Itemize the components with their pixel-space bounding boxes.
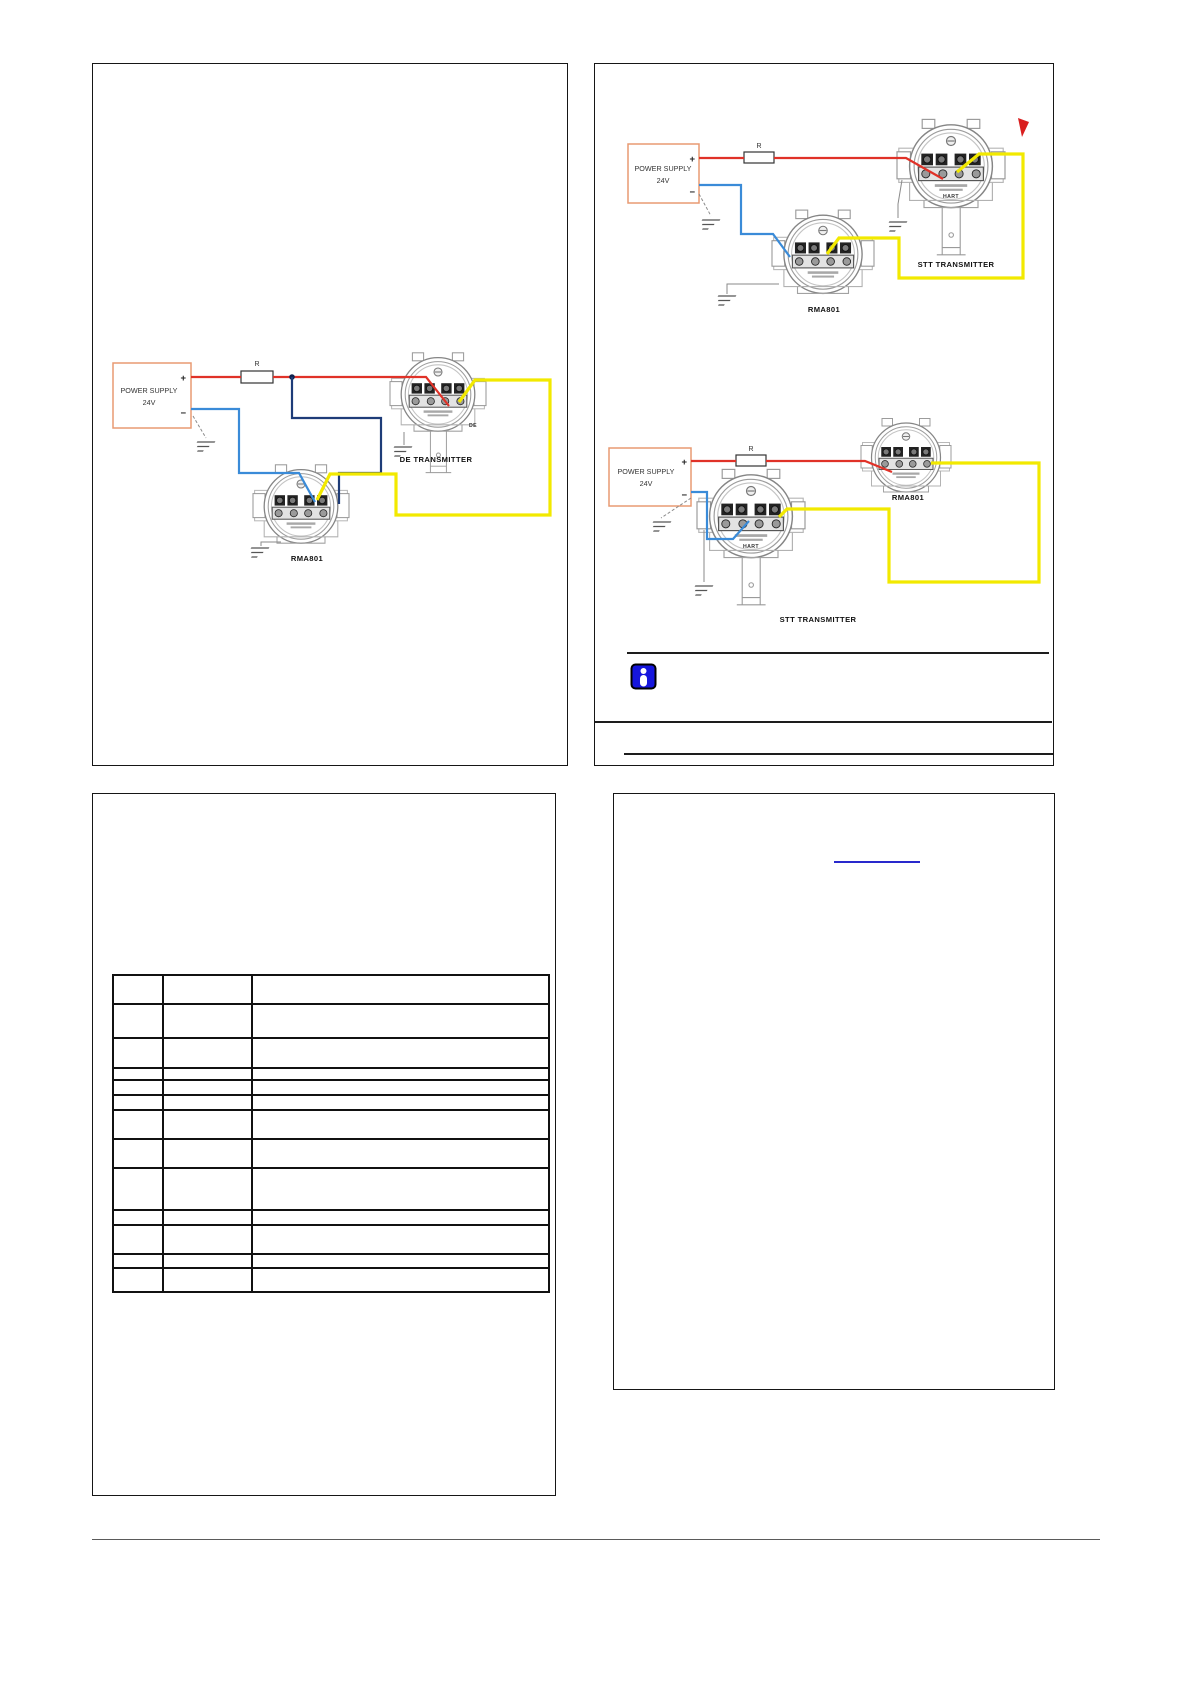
table-cell	[253, 1005, 548, 1037]
table-cell	[164, 1005, 253, 1037]
voltage-label: 24V	[143, 398, 156, 407]
resistor-symbol	[241, 371, 273, 383]
manual-page: POWER SUPPLY 24V + − R	[0, 0, 1192, 1685]
table-cell	[253, 1169, 548, 1209]
table-cell	[164, 1211, 253, 1224]
table-cell	[114, 1211, 164, 1224]
plus-terminal-label: +	[681, 457, 687, 468]
table-cell	[253, 1039, 548, 1067]
transmitter-label: DE TRANSMITTER	[400, 455, 473, 464]
voltage-label: 24V	[640, 479, 653, 488]
note-top-rule	[627, 652, 1049, 654]
table-cell	[253, 1226, 548, 1253]
table-cell	[114, 1096, 164, 1109]
table-cell	[164, 1081, 253, 1094]
table-cell	[114, 1140, 164, 1167]
table-cell	[114, 1269, 164, 1291]
table-row	[114, 1096, 548, 1111]
table-row	[114, 1111, 548, 1140]
monitor-label: RMA801	[808, 305, 841, 314]
monitor-label: RMA801	[892, 493, 925, 502]
table-cell	[253, 1211, 548, 1224]
rma801-drawing	[861, 419, 951, 493]
footer-rule	[92, 1539, 1100, 1540]
revision-marker-icon	[1018, 118, 1029, 137]
power-supply-box	[628, 144, 699, 203]
table-cell	[164, 1255, 253, 1267]
wiring-diagram-de: POWER SUPPLY 24V + − R	[93, 64, 566, 764]
table-cell	[164, 1069, 253, 1079]
table-row	[114, 1039, 548, 1069]
table-cell	[164, 1169, 253, 1209]
figure-box-de-wiring: POWER SUPPLY 24V + − R	[92, 63, 568, 766]
hart-label: HART	[943, 194, 959, 200]
figure-box-stt-wiring: POWER SUPPLY 24V + − R HART STT T	[594, 63, 1054, 766]
note-bottom-rule	[624, 753, 1053, 755]
table-row	[114, 976, 548, 1005]
section-rule	[595, 721, 1052, 723]
resistor-label: R	[254, 361, 259, 368]
ground-symbol	[696, 194, 720, 229]
table-cell	[114, 1111, 164, 1138]
table-cell	[114, 1069, 164, 1079]
wiring-diagram-stt: POWER SUPPLY 24V + − R HART STT T	[595, 64, 1052, 764]
table-cell	[114, 1255, 164, 1267]
ground-symbol	[388, 432, 412, 456]
transmitter-label: STT TRANSMITTER	[918, 260, 995, 269]
table-row	[114, 1169, 548, 1211]
table-cell	[114, 1005, 164, 1037]
plus-terminal-label: +	[689, 154, 695, 165]
ground-symbol	[712, 284, 779, 305]
table-cell	[253, 1140, 548, 1167]
resistor-label: R	[748, 446, 753, 453]
table-row	[114, 1081, 548, 1096]
table-row	[114, 1005, 548, 1039]
table-cell	[164, 1096, 253, 1109]
resistor-symbol	[736, 455, 766, 466]
table-cell	[164, 1140, 253, 1167]
table-cell	[253, 1269, 548, 1291]
table-cell	[253, 1096, 548, 1109]
table-cell	[164, 976, 253, 1003]
table-cell	[114, 1081, 164, 1094]
table-cell	[253, 1069, 548, 1079]
power-supply-label: POWER SUPPLY	[635, 164, 692, 173]
table-cell	[253, 976, 548, 1003]
monitor-label: RMA801	[291, 554, 324, 563]
table-row	[114, 1255, 548, 1269]
table-cell	[164, 1111, 253, 1138]
table-cell	[164, 1269, 253, 1291]
power-supply-label: POWER SUPPLY	[121, 386, 178, 395]
table-cell	[114, 976, 164, 1003]
table-row	[114, 1269, 548, 1291]
hart-label: HART	[743, 544, 759, 550]
de-tag-label: DE	[469, 423, 477, 429]
resistor-symbol	[744, 152, 774, 163]
ground-symbol	[245, 542, 281, 557]
table-row	[114, 1140, 548, 1169]
table-row	[114, 1069, 548, 1081]
table-cell	[253, 1081, 548, 1094]
terminal-table	[112, 974, 550, 1293]
stt-transmitter-drawing	[697, 469, 805, 604]
minus-terminal-label: −	[681, 490, 687, 501]
table-cell	[253, 1111, 548, 1138]
table-cell	[114, 1169, 164, 1209]
transmitter-label: STT TRANSMITTER	[780, 615, 857, 624]
voltage-label: 24V	[657, 176, 670, 185]
table-cell	[164, 1226, 253, 1253]
ground-symbol	[883, 180, 907, 231]
power-supply-box	[609, 448, 691, 506]
power-supply-box	[113, 363, 191, 428]
table-cell	[164, 1039, 253, 1067]
figure-box-table	[92, 793, 556, 1496]
plus-terminal-label: +	[180, 373, 186, 384]
table-row	[114, 1211, 548, 1226]
resistor-label: R	[756, 143, 761, 150]
table-cell	[114, 1226, 164, 1253]
table-cell	[114, 1039, 164, 1067]
minus-terminal-label: −	[689, 187, 695, 198]
power-supply-label: POWER SUPPLY	[618, 467, 675, 476]
ground-symbol	[191, 416, 215, 451]
table-cell	[253, 1255, 548, 1267]
minus-terminal-label: −	[180, 408, 186, 419]
table-row	[114, 1226, 548, 1255]
hyperlink[interactable]	[834, 858, 920, 863]
stt-transmitter-drawing	[897, 119, 1005, 254]
figure-box-text	[613, 793, 1055, 1390]
